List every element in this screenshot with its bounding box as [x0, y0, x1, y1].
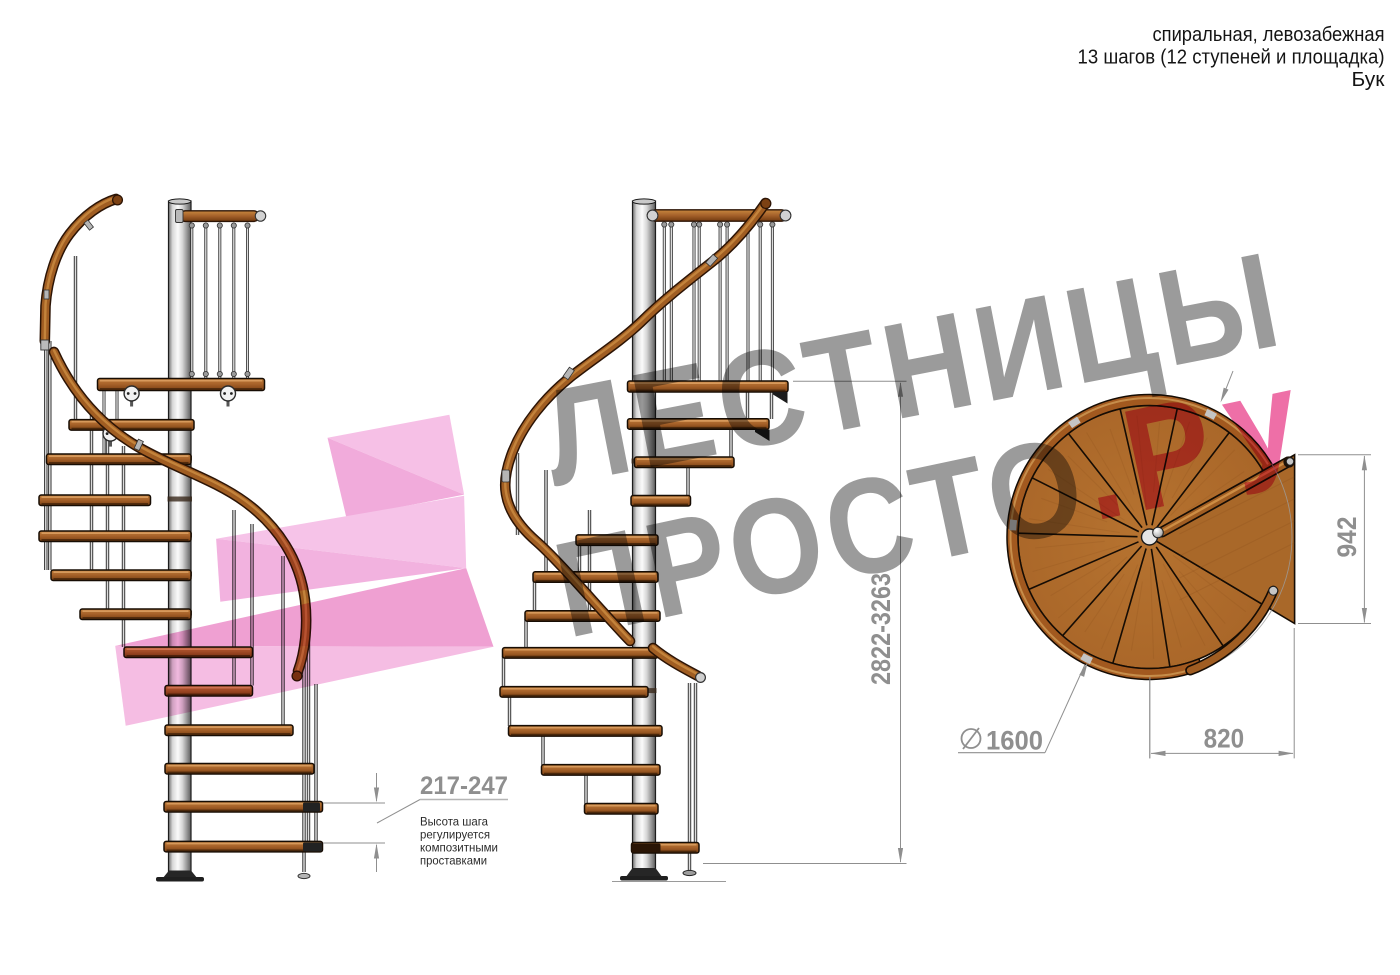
- svg-text:Бук: Бук: [1352, 68, 1386, 91]
- svg-text:композитными: композитными: [420, 841, 498, 855]
- svg-text:942: 942: [1332, 517, 1362, 558]
- svg-text:217-247: 217-247: [420, 772, 508, 800]
- svg-text:1600: 1600: [986, 726, 1043, 756]
- svg-text:проставками: проставками: [420, 854, 487, 868]
- svg-text:13 шагов (12 ступеней и площад: 13 шагов (12 ступеней и площадка): [1078, 46, 1385, 69]
- svg-text:спиральная, левозабежная: спиральная, левозабежная: [1153, 23, 1385, 46]
- svg-text:Высота шага: Высота шага: [420, 815, 488, 829]
- svg-text:регулируется: регулируется: [420, 828, 490, 842]
- svg-text:820: 820: [1204, 724, 1245, 754]
